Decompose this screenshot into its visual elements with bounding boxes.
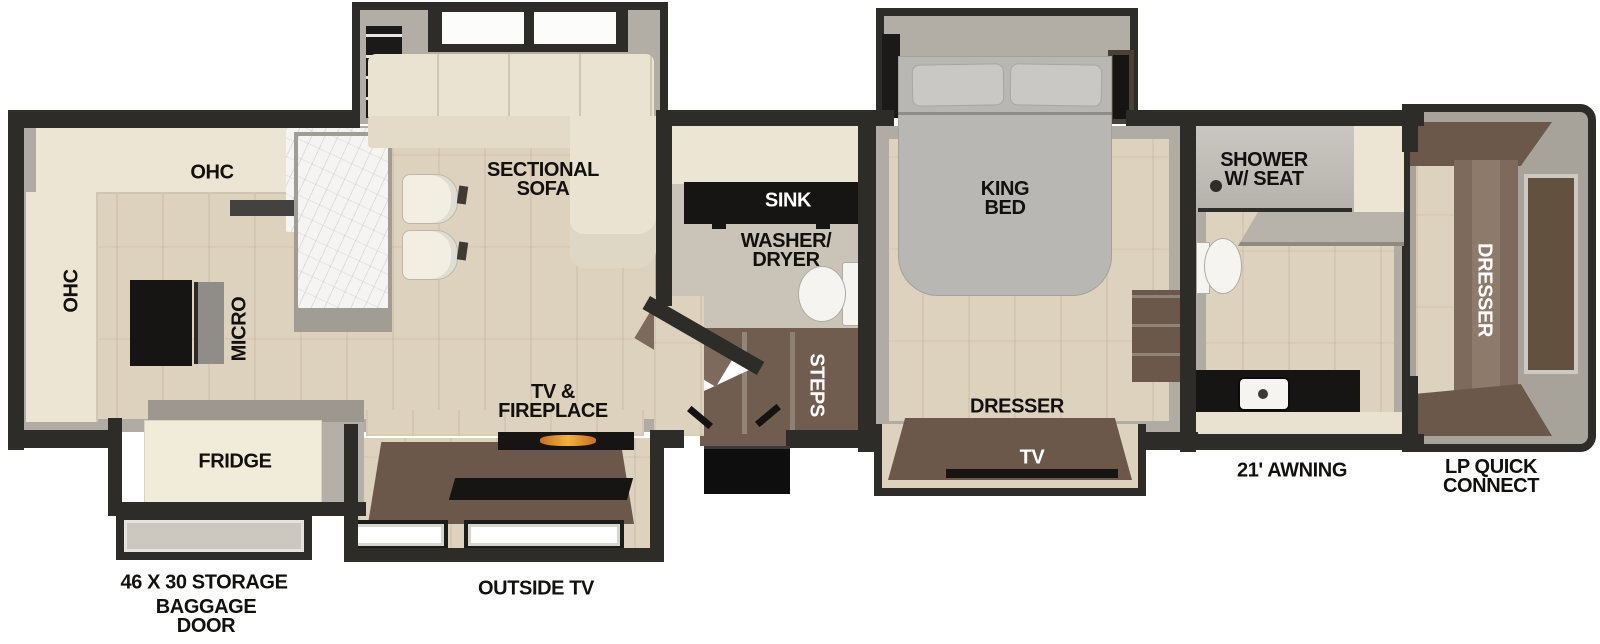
- wall-segment: [656, 110, 672, 306]
- outside-tv-compartment: [348, 520, 448, 550]
- wall-segment: [876, 110, 894, 126]
- label-outside-tv: OUTSIDE TV: [478, 580, 594, 599]
- label-tv-bedroom: TV: [1020, 449, 1045, 468]
- storage-bay: [124, 520, 304, 552]
- overhead-cabinet-top: [36, 128, 288, 194]
- bed-pillow: [912, 63, 1005, 107]
- counter-leg: [816, 222, 830, 229]
- skylight-pane: [442, 12, 524, 44]
- wall-segment: [344, 424, 358, 562]
- toilet-bowl: [798, 266, 846, 322]
- label-dresser-bedroom: DRESSER: [970, 398, 1064, 417]
- counter-shelf: [230, 200, 296, 216]
- label-ohc-left: OHC: [63, 269, 82, 312]
- bed-seam: [898, 112, 1112, 115]
- label-shower: SHOWER W/ SEAT: [1220, 151, 1308, 189]
- rv-floorplan: OHC OHC MICRO FRIDGE SECTIONAL SOFA TV &…: [0, 0, 1600, 644]
- front-bath-counter: [1238, 212, 1404, 246]
- faucet: [1258, 389, 1268, 399]
- counter-leg: [712, 222, 726, 229]
- mid-bath-cabinet: [672, 126, 860, 184]
- oven-door: [194, 282, 224, 364]
- label-awning: 21' AWNING: [1237, 462, 1347, 481]
- label-fridge: FRIDGE: [198, 453, 271, 472]
- wall-segment: [8, 110, 360, 128]
- step-tread: [790, 332, 795, 434]
- wall-segment: [1180, 110, 1196, 452]
- range-cooktop: [130, 280, 192, 366]
- step-tread: [742, 332, 747, 434]
- wardrobe-panel: [1524, 174, 1578, 374]
- wall-segment: [858, 110, 876, 452]
- label-king-bed: KING BED: [981, 180, 1029, 218]
- label-micro: MICRO: [231, 297, 250, 362]
- label-tv-fireplace: TV & FIREPLACE: [498, 383, 608, 421]
- bar-stool: [402, 174, 458, 224]
- label-sink: SINK: [765, 192, 811, 211]
- tv-bedroom-screen: [946, 469, 1118, 478]
- bed-pillow: [1010, 63, 1103, 107]
- label-steps: STEPS: [807, 353, 826, 417]
- kitchen-island-top: [298, 136, 388, 308]
- wall-segment: [650, 430, 684, 448]
- sectional-sofa-back: [368, 54, 654, 120]
- wall-segment: [1402, 376, 1418, 450]
- tv-living: [449, 478, 633, 500]
- label-dresser-front: DRESSER: [1475, 243, 1494, 337]
- label-lp-quick-connect: LP QUICK CONNECT: [1443, 458, 1539, 496]
- wall-segment: [8, 110, 24, 450]
- shower-glass: [1198, 208, 1352, 212]
- entry-step-box: [704, 446, 790, 494]
- toilet-bowl: [1204, 238, 1242, 294]
- fireplace-flame: [540, 435, 596, 446]
- fridge-counter: [148, 400, 364, 422]
- wall-segment: [656, 110, 880, 126]
- wall-segment: [344, 548, 664, 562]
- bar-stool: [402, 230, 458, 280]
- bedroom-side-shelf: [1132, 290, 1182, 382]
- label-washer-dryer: WASHER/ DRYER: [741, 232, 832, 270]
- wall-segment: [1180, 110, 1424, 126]
- skylight-pane: [534, 12, 616, 44]
- wall-segment: [8, 430, 120, 448]
- wall-segment: [650, 434, 664, 560]
- wall-segment: [1402, 110, 1418, 152]
- label-ohc-top: OHC: [190, 164, 233, 183]
- label-baggage-door: BAGGAGE DOOR: [156, 598, 257, 636]
- front-bath-cabinet: [1354, 126, 1404, 214]
- outside-tv-compartment: [464, 520, 624, 550]
- label-storage: 46 X 30 STORAGE: [120, 574, 287, 593]
- label-sectional-sofa: SECTIONAL SOFA: [487, 161, 599, 199]
- wall-segment: [1180, 434, 1424, 450]
